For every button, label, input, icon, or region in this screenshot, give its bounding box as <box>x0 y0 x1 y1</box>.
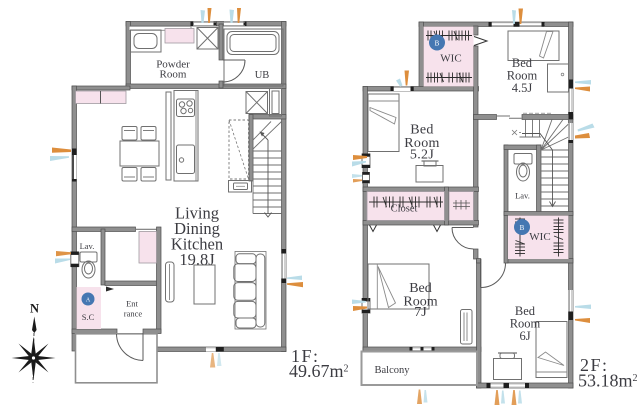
svg-text:49.67m2: 49.67m2 <box>289 361 349 381</box>
svg-text:UB: UB <box>255 70 270 81</box>
svg-text:N: N <box>30 302 39 316</box>
svg-text:Lav.: Lav. <box>80 241 95 251</box>
svg-text:4.5J: 4.5J <box>512 81 533 95</box>
svg-text:WIC: WIC <box>529 231 550 243</box>
svg-text:19.8J: 19.8J <box>179 250 215 269</box>
svg-text:5.2J: 5.2J <box>410 148 434 163</box>
svg-text:Balcony: Balcony <box>375 365 411 376</box>
svg-text:6J: 6J <box>519 329 530 343</box>
svg-text:Room: Room <box>160 69 187 81</box>
svg-text:53.18m2: 53.18m2 <box>578 371 638 391</box>
svg-text:Lav.: Lav. <box>515 191 530 201</box>
svg-text:Ent: Ent <box>126 299 138 309</box>
svg-text:rance: rance <box>124 309 143 319</box>
svg-text:B: B <box>520 224 525 232</box>
svg-text:7J: 7J <box>414 305 427 320</box>
svg-text:B: B <box>435 40 440 48</box>
svg-text:A: A <box>86 298 91 304</box>
svg-text:WIC: WIC <box>440 53 461 65</box>
svg-text:S.C: S.C <box>82 312 95 322</box>
svg-text:Closet: Closet <box>391 204 418 215</box>
